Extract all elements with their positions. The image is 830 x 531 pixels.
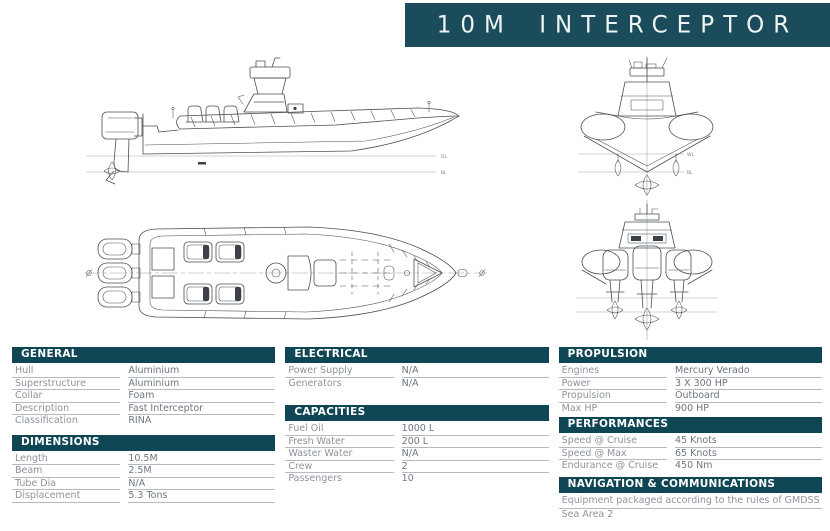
spec-row: Waster WaterN/A [285,448,548,461]
section-title: ELECTRICAL [285,347,548,363]
spec-label: Generators [285,378,393,391]
spec-row: ClassificationRINA [12,415,275,428]
bow-post-top [428,101,430,103]
spec-note: Sea Area 2 [559,509,822,524]
spec-value: N/A [128,478,275,491]
spec-label: Collar [12,390,120,403]
outboard-engine-side [102,112,142,184]
spec-label: Speed @ Max [559,448,667,461]
spec-value: Fast Interceptor [128,403,275,416]
spec-tables: GENERALHullAluminiumSuperstructureAlumin… [12,347,822,524]
spec-row: Beam2.5M [12,465,275,478]
spec-row: Equipment packaged according to the rule… [559,495,822,510]
spec-label: Superstructure [12,378,120,391]
section-title: CAPACITIES [285,405,548,421]
section-performances: PERFORMANCESSpeed @ Cruise45 KnotsSpeed … [559,417,822,473]
spec-value: 900 HP [675,403,822,416]
spec-row: Fuel Oil1000 L [285,423,548,436]
spec-column-1: GENERALHullAluminiumSuperstructureAlumin… [12,347,275,524]
spec-value: 450 Nm [675,460,822,473]
spec-label: Waster Water [285,448,393,461]
spec-row: Length10.5M [12,453,275,466]
spec-label: Power Supply [285,365,393,378]
section-title: DIMENSIONS [12,435,275,451]
section-dimensions: DIMENSIONSLength10.5MBeam2.5MTube DiaN/A… [12,435,275,503]
datasheet-page: 10M INTERCEPTOR DL BL [0,0,830,531]
spec-row: Crew2 [285,461,548,474]
spec-value: N/A [402,448,549,461]
spec-value: 65 Knots [675,448,822,461]
side-waterline-upper-label: DL [441,154,448,160]
side-profile-drawing: DL BL [86,54,471,202]
stern-view-drawing [572,198,722,344]
spec-value: Foam [128,390,275,403]
bow-waterline-upper-label: WL [687,152,695,158]
spec-value: 3 X 300 HP [675,378,822,391]
bow-view-drawing: WL BL [572,54,722,200]
spec-label: Description [12,403,120,416]
spec-row: Speed @ Cruise45 Knots [559,435,822,448]
spec-value: 10 [402,473,549,486]
spec-row: Power SupplyN/A [285,365,548,378]
spec-label: Tube Dia [12,478,120,491]
spec-value: 2.5M [128,465,275,478]
section-capacities: CAPACITIESFuel Oil1000 LFresh Water200 L… [285,405,548,486]
spec-label: Propulsion [559,390,667,403]
spec-value: Mercury Verado [675,365,822,378]
console-mast-side [238,58,303,113]
stern-post-top [172,107,174,109]
spec-label: Length [12,453,120,466]
spec-row: Endurance @ Cruise450 Nm [559,460,822,473]
title-banner: 10M INTERCEPTOR [405,3,830,47]
spec-value: 200 L [402,436,549,449]
spec-label: Passengers [285,473,393,486]
spec-label: Speed @ Cruise [559,435,667,448]
spec-value: Outboard [675,390,822,403]
section-navigation-communications: NAVIGATION & COMMUNICATIONSEquipment pac… [559,477,822,524]
section-title: GENERAL [12,347,275,363]
spec-value: 1000 L [402,423,549,436]
spec-label: Hull [12,365,120,378]
spec-row: GeneratorsN/A [285,378,548,391]
spec-row: DescriptionFast Interceptor [12,403,275,416]
spec-row: Displacement5.3 Tons [12,490,275,503]
mast-bow [629,58,667,82]
spec-label: Fuel Oil [285,423,393,436]
section-propulsion: PROPULSIONEnginesMercury VeradoPower3 X … [559,347,822,415]
spec-row: Fresh Water200 L [285,436,548,449]
spec-value: 45 Knots [675,435,822,448]
spec-label: Crew [285,461,393,474]
section-title: PROPULSION [559,347,822,363]
spec-row: Tube DiaN/A [12,478,275,491]
spec-value: Aluminium [128,365,275,378]
spec-value: Aluminium [128,378,275,391]
spec-value: N/A [402,365,549,378]
spec-row: Max HP900 HP [559,403,822,416]
spec-value: 5.3 Tons [128,490,275,503]
spec-value: 2 [402,461,549,474]
spec-label: Classification [12,415,120,428]
spec-row: EnginesMercury Verado [559,365,822,378]
spec-row: Sea Area 2 [559,509,822,524]
section-general: GENERALHullAluminiumSuperstructureAlumin… [12,347,275,428]
spec-value: RINA [128,415,275,428]
spec-label: Engines [559,365,667,378]
spec-label: Fresh Water [285,436,393,449]
spec-label: Beam [12,465,120,478]
spec-label: Endurance @ Cruise [559,460,667,473]
side-waterline-lower-label: BL [441,170,447,176]
spec-value: 10.5M [128,453,275,466]
section-title: PERFORMANCES [559,417,822,433]
spec-value: N/A [402,378,549,391]
spec-row: CollarFoam [12,390,275,403]
spec-note: Equipment packaged according to the rule… [559,495,822,510]
spec-row: Power3 X 300 HP [559,378,822,391]
spec-label: Power [559,378,667,391]
spec-row: Passengers10 [285,473,548,486]
spec-row: HullAluminium [12,365,275,378]
spec-row: Speed @ Max65 Knots [559,448,822,461]
spec-label: Max HP [559,403,667,416]
section-title: NAVIGATION & COMMUNICATIONS [559,477,822,493]
section-electrical: ELECTRICALPower SupplyN/AGeneratorsN/A [285,347,548,390]
spec-row: SuperstructureAluminium [12,378,275,391]
page-title: 10M INTERCEPTOR [437,11,798,38]
spec-row: PropulsionOutboard [559,390,822,403]
plan-view-drawing [84,204,489,344]
spec-column-2: ELECTRICALPower SupplyN/AGeneratorsN/ACA… [285,347,548,524]
spec-label: Displacement [12,490,120,503]
spec-column-3: PROPULSIONEnginesMercury VeradoPower3 X … [559,347,822,524]
bow-waterline-lower-label: BL [687,170,693,176]
